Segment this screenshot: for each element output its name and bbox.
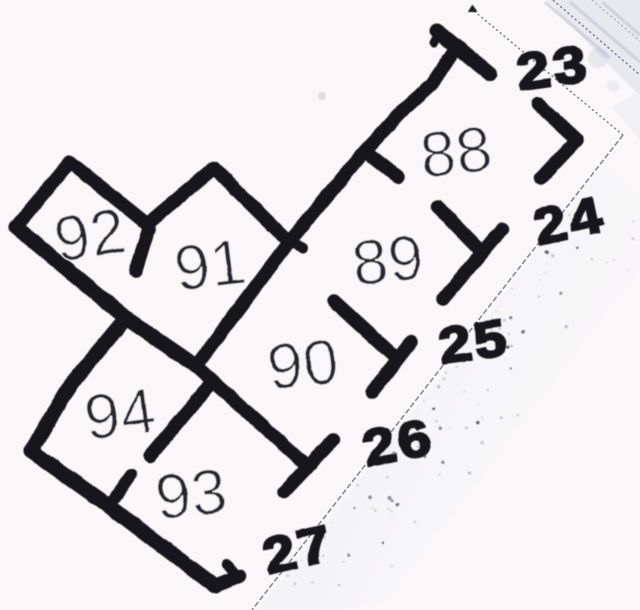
svg-text:92: 92 bbox=[49, 194, 131, 276]
svg-text:90: 90 bbox=[264, 324, 342, 403]
svg-text:91: 91 bbox=[170, 225, 249, 305]
svg-text:25: 25 bbox=[435, 308, 513, 374]
svg-text:89: 89 bbox=[349, 220, 427, 299]
svg-text:23: 23 bbox=[513, 34, 594, 101]
svg-text:93: 93 bbox=[152, 454, 230, 533]
svg-text:88: 88 bbox=[417, 112, 495, 191]
svg-text:94: 94 bbox=[80, 374, 159, 454]
